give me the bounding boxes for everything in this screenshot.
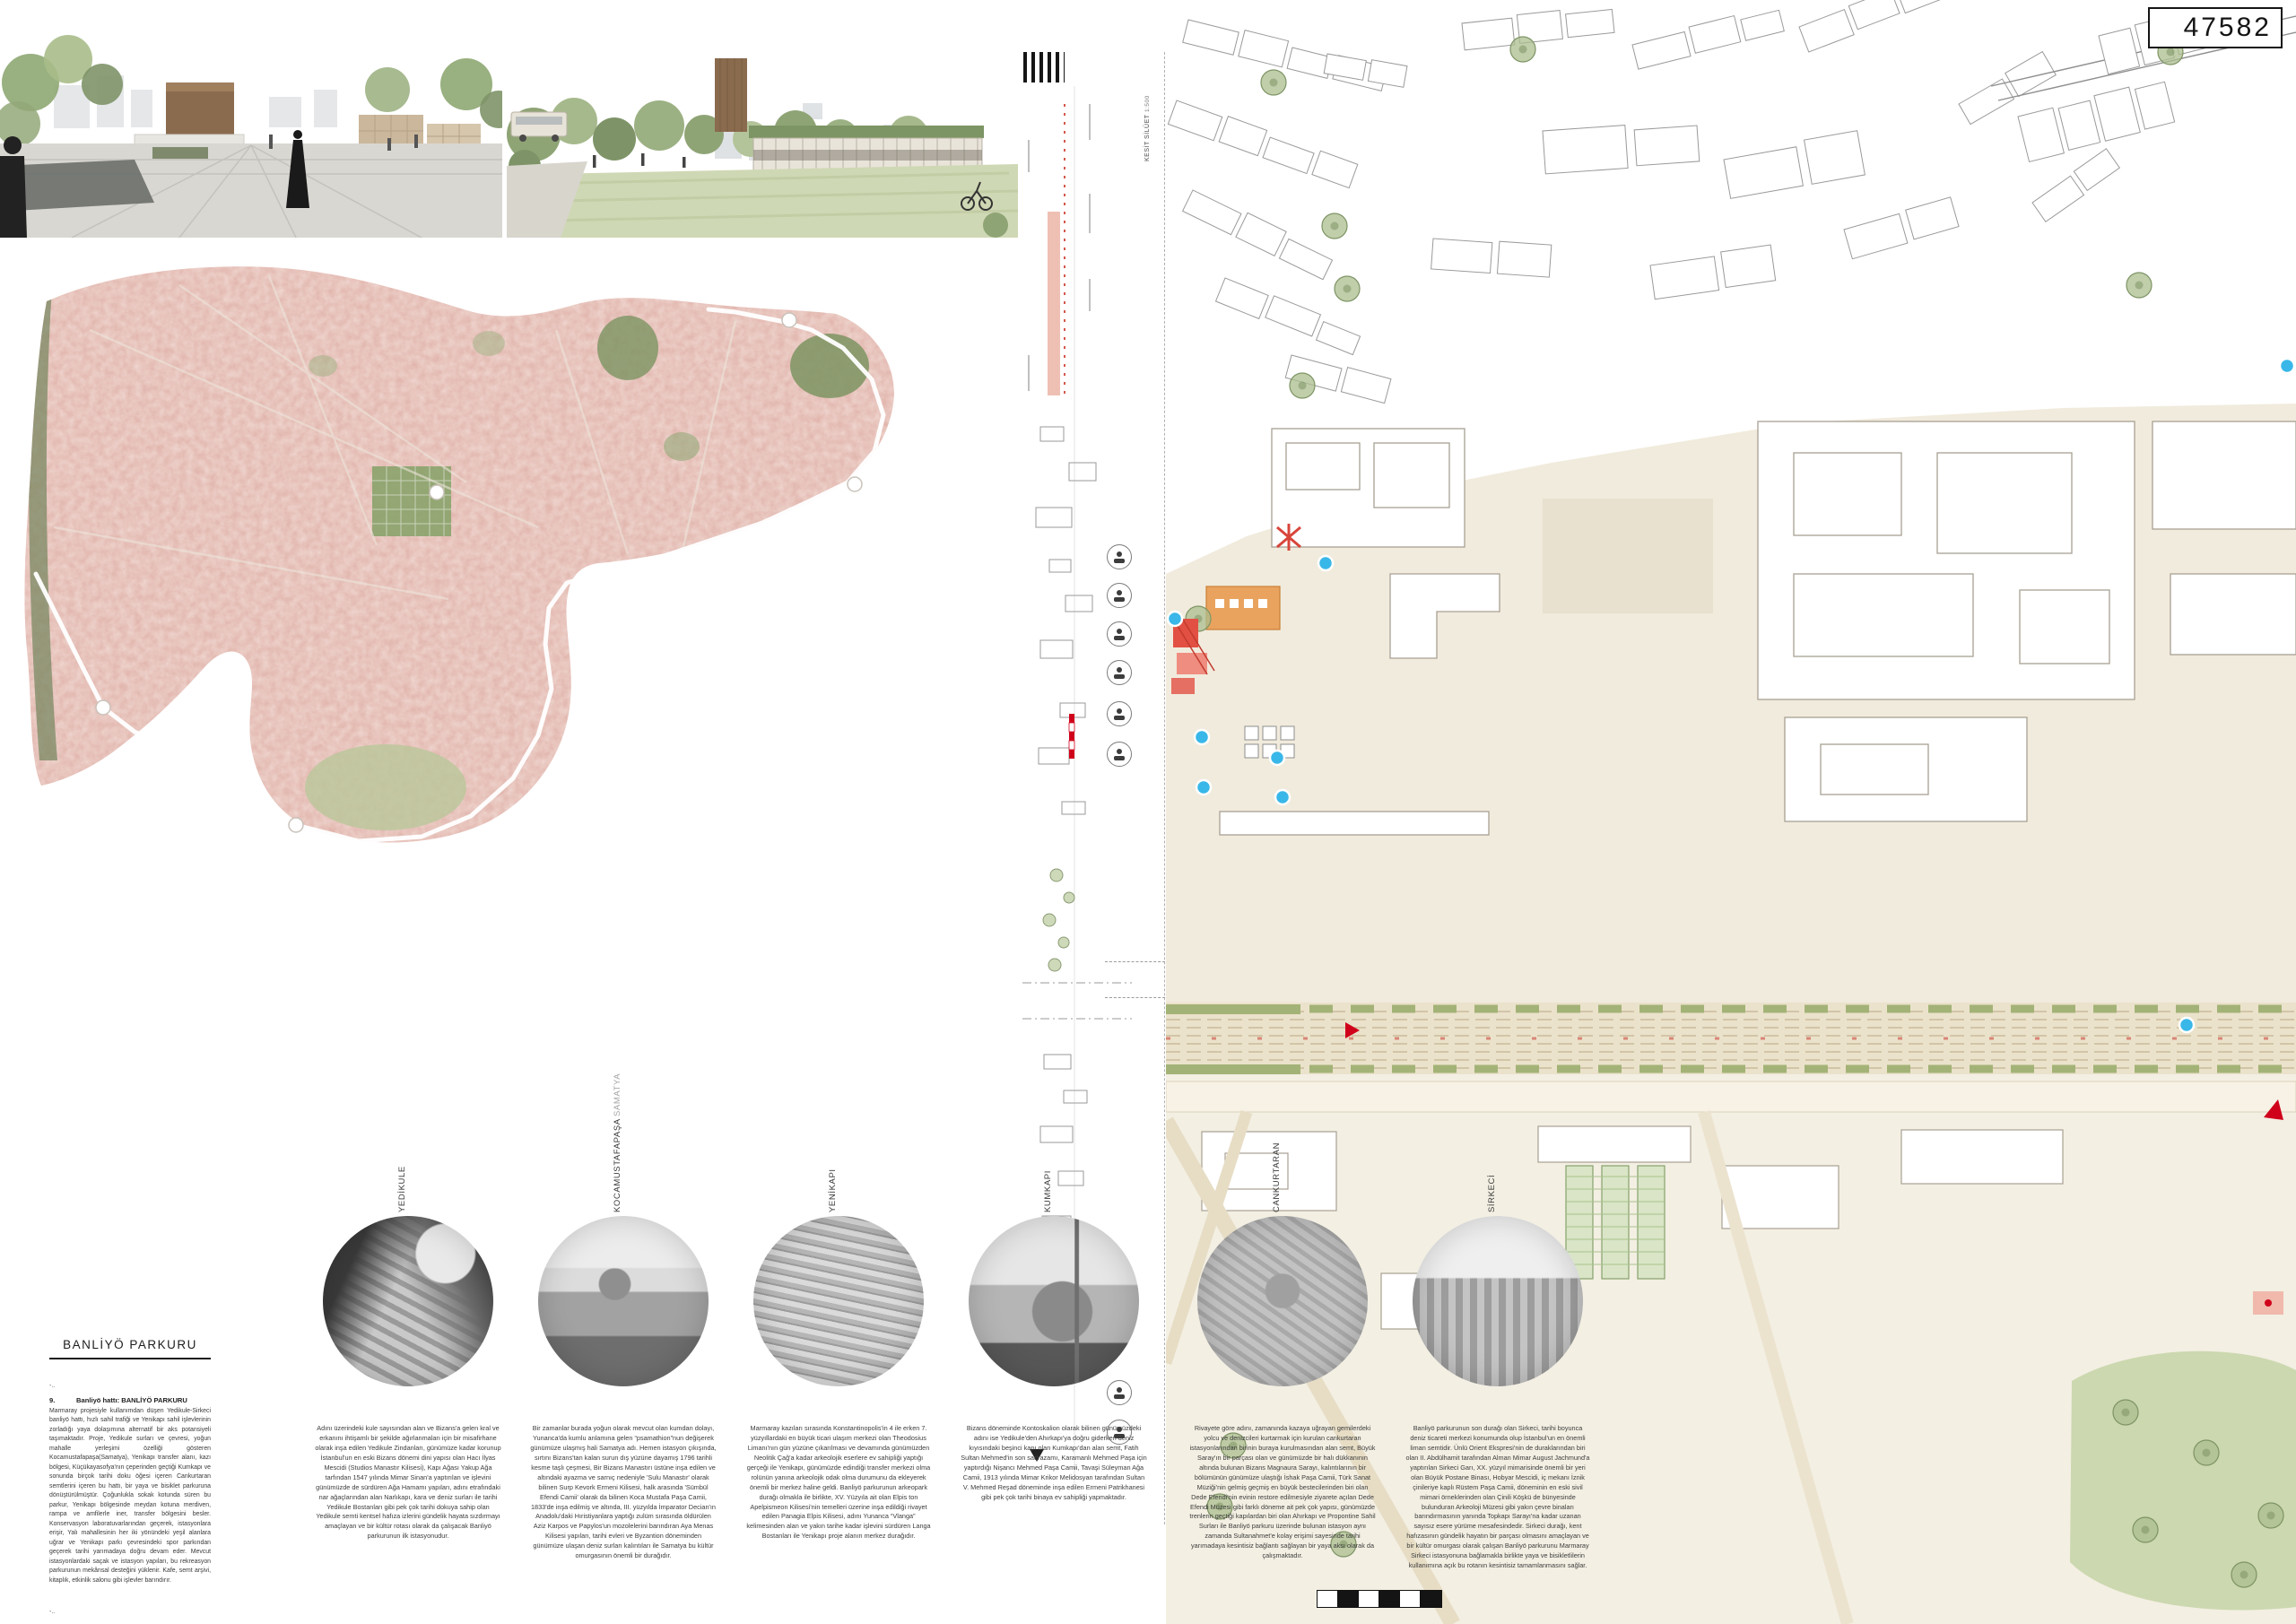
presentation-board: KESİT SİLÜET 1:500	[0, 0, 2296, 1624]
station-cankurtaran: CANKURTARAN Rivayete göre adını, zamanın…	[1188, 1112, 1377, 1614]
section-label-text: KESİT SİLÜET	[1144, 114, 1151, 161]
title-block: BANLİYÖ PARKURU -.. 9. Banliyö hattı: BA…	[49, 1338, 211, 1615]
station-photo	[1197, 1216, 1368, 1386]
yenikapi-lawn	[305, 744, 466, 830]
render-perspective-2	[507, 49, 1018, 238]
road-band	[1166, 1081, 2296, 1112]
railway-corridor	[1166, 1003, 2296, 1074]
green-roof-building	[749, 126, 984, 172]
section-comb-icon	[1023, 52, 1065, 83]
pictogram-medallion	[1107, 621, 1132, 647]
title-rule	[49, 1358, 211, 1359]
section-trees	[1043, 869, 1074, 971]
station-label: SİRKECİ	[1487, 1112, 1497, 1212]
section-label: KESİT SİLÜET 1:500	[1144, 45, 1151, 161]
scalebar-cell	[1400, 1591, 1421, 1607]
section-scale: 1:500	[1144, 96, 1151, 113]
shrub	[983, 213, 1008, 238]
station-yenikapi: YENİKAPI Marmaray kazıları sırasında Kon…	[744, 1112, 933, 1614]
aerial-map	[0, 258, 1022, 850]
match-line	[1105, 997, 1170, 998]
item-number: 9.	[49, 1396, 76, 1404]
station-photo	[753, 1216, 924, 1386]
ellipsis: -..	[49, 1609, 211, 1615]
station-label: CANKURTARAN	[1272, 1112, 1282, 1212]
pictogram-medallion	[1107, 742, 1132, 767]
figure-ground-parcels	[1168, 0, 2120, 404]
scalebar-cell	[1318, 1591, 1338, 1607]
station-label: KUMKAPI	[1043, 1112, 1053, 1212]
striped-pole	[1069, 714, 1074, 759]
section-heading: 9. Banliyö hattı: BANLİYÖ PARKURU	[49, 1396, 211, 1404]
station-description: Rivayete göre adını, zamanında kazaya uğ…	[1189, 1424, 1376, 1561]
station-label: KOCAMUSTAFAPAŞASAMATYA	[613, 1112, 622, 1212]
scalebar-cell	[1379, 1591, 1400, 1607]
heading-text: Banliyö hattı: BANLİYÖ PARKURU	[76, 1396, 187, 1404]
station-label: YEDİKULE	[397, 1112, 407, 1212]
station-description: Bir zamanlar burada yoğun olarak mevcut …	[530, 1424, 717, 1561]
scale-bar	[1317, 1590, 1442, 1608]
render-perspective-1	[0, 0, 502, 238]
station-photo	[1413, 1216, 1583, 1386]
scalebar-cell	[1359, 1591, 1379, 1607]
station-deck	[1206, 586, 1280, 630]
ellipsis: -..	[49, 1383, 211, 1389]
page-title: BANLİYÖ PARKURU	[49, 1338, 211, 1351]
micro-buildings	[1036, 427, 1096, 814]
scalebar-cell	[1421, 1591, 1441, 1607]
station-yedikule: YEDİKULE Adını üzerindeki kule sayısında…	[314, 1112, 502, 1614]
cut-line	[1164, 52, 1165, 1524]
station-description: Marmaray kazıları sırasında Konstantinop…	[745, 1424, 932, 1541]
pictogram-medallion	[1107, 544, 1132, 569]
brown-tower	[715, 58, 747, 132]
station-photo	[538, 1216, 709, 1386]
station-photo	[969, 1216, 1139, 1386]
intro-paragraph: Marmaray projesiyle kullanımdan düşen Ye…	[49, 1407, 211, 1585]
park-grid	[372, 466, 451, 536]
competition-number: 47582	[2184, 13, 2272, 43]
lawn-bottom-right	[2070, 1351, 2296, 1611]
station-label: YENİKAPI	[828, 1112, 838, 1212]
pictogram-medallion	[1107, 660, 1132, 685]
station-kocamustafapasa: KOCAMUSTAFAPAŞASAMATYA Bir zamanlar bura…	[529, 1112, 717, 1614]
station-sirkeci: SİRKECİ Banliyö parkurunun son durağı ol…	[1404, 1112, 1592, 1614]
station-description: Bizans döneminde Kontoskalion olarak bil…	[961, 1424, 1147, 1503]
station-kumkapi: KUMKAPI Bizans döneminde Kontoskalion ol…	[960, 1112, 1148, 1614]
station-description: Adını üzerindeki kule sayısından alan ve…	[315, 1424, 501, 1541]
station-description: Banliyö parkurunun son durağı olan Sirke…	[1405, 1424, 1591, 1571]
competition-number-box: 47582	[2148, 7, 2283, 48]
pictogram-medallion	[1107, 701, 1132, 726]
pictogram-medallion	[1107, 583, 1132, 608]
match-line	[1105, 961, 1170, 962]
salmon-band	[1048, 212, 1060, 395]
scalebar-cell	[1338, 1591, 1359, 1607]
station-photo	[323, 1216, 493, 1386]
